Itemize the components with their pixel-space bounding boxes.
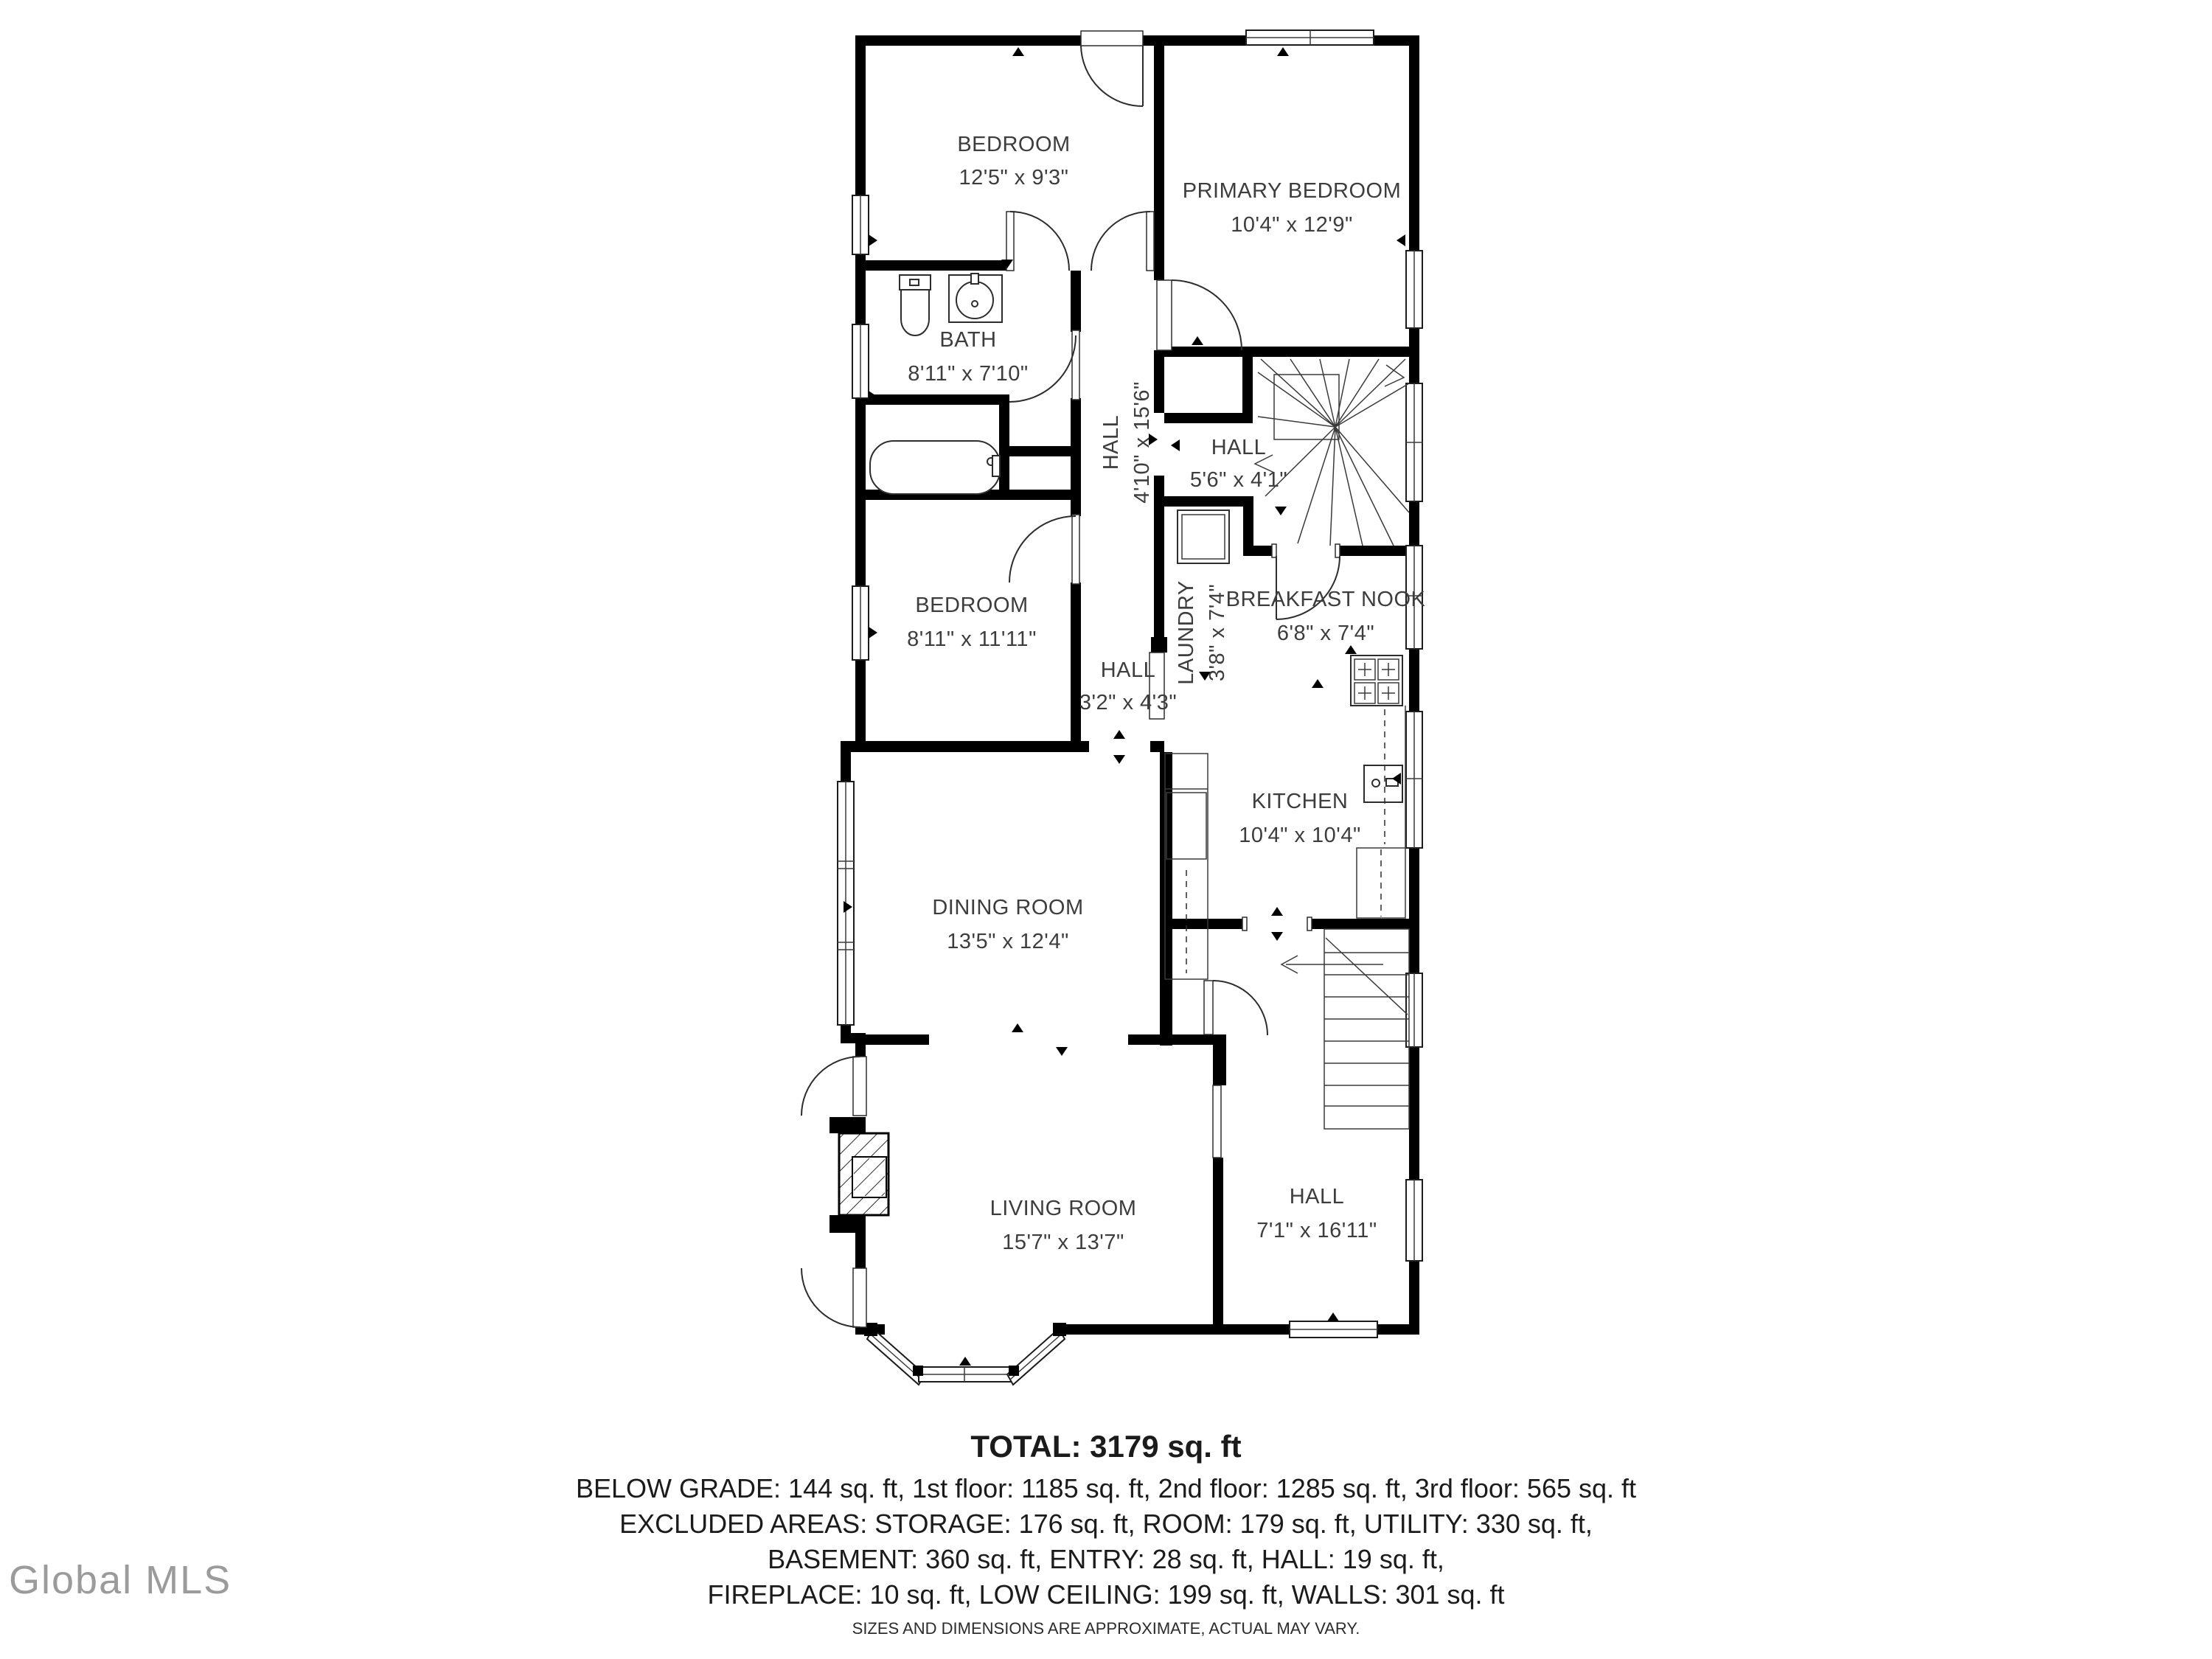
room-dims-hall-small: 3'2" x 4'3" bbox=[1079, 691, 1177, 714]
door-kitchen-hall bbox=[1204, 981, 1267, 1035]
room-label-hall-small: HALL bbox=[1101, 658, 1156, 682]
room-label-dining-room: DINING ROOM bbox=[932, 896, 1083, 919]
window-bath-left bbox=[852, 324, 869, 398]
room-label-breakfast-nook: BREAKFAST NOOK bbox=[1226, 588, 1426, 611]
summary-disclaimer: SIZES AND DIMENSIONS ARE APPROXIMATE, AC… bbox=[0, 1619, 2212, 1638]
room-dims-living-room: 15'7" x 13'7" bbox=[1002, 1231, 1124, 1254]
oven-icon bbox=[1364, 765, 1402, 802]
floorplan-page: { "watermark": "Global MLS", "floorplan"… bbox=[0, 0, 2212, 1659]
summary-total: TOTAL: 3179 sq. ft bbox=[0, 1429, 2212, 1464]
window-top-primary bbox=[1246, 30, 1374, 45]
room-label-bath: BATH bbox=[939, 328, 996, 352]
global-mls-watermark: Global MLS bbox=[9, 1557, 232, 1603]
room-dims-kitchen: 10'4" x 10'4" bbox=[1239, 824, 1361, 847]
toilet-icon bbox=[900, 275, 931, 335]
window-bedroom2-left bbox=[852, 586, 869, 660]
door-bedroom2 bbox=[1009, 515, 1079, 584]
room-label-hall-upper: HALL bbox=[1099, 415, 1123, 470]
room-label-hall-stairs: HALL bbox=[1211, 436, 1267, 459]
floorplan: BEDROOM 12'5" x 9'3" PRIMARY BEDROOM 10'… bbox=[782, 29, 1445, 1423]
summary-line-excluded: EXCLUDED AREAS: STORAGE: 176 sq. ft, ROO… bbox=[0, 1509, 2212, 1540]
room-label-living-room: LIVING ROOM bbox=[990, 1197, 1137, 1220]
window-kitchen-right bbox=[1406, 712, 1422, 848]
room-dims-primary-bedroom: 10'4" x 12'9" bbox=[1231, 213, 1353, 237]
room-label-laundry: LAUNDRY bbox=[1175, 580, 1198, 685]
room-dims-bedroom-mid: 8'11" x 11'11" bbox=[907, 627, 1037, 651]
window-bedroom-left bbox=[852, 195, 869, 254]
door-living-exterior-lower bbox=[801, 1268, 866, 1327]
room-dims-hall-upper: 4'10" x 15'6" bbox=[1130, 381, 1154, 504]
opening-kitchen-passage bbox=[1242, 917, 1312, 931]
room-label-hall-entry: HALL bbox=[1290, 1185, 1345, 1208]
main-staircase bbox=[1281, 929, 1409, 1129]
door-top-closet bbox=[1081, 31, 1143, 106]
room-dims-dining-room: 13'5" x 12'4" bbox=[947, 930, 1069, 953]
window-stairs-right bbox=[1406, 383, 1422, 501]
room-dims-hall-entry: 7'1" x 16'11" bbox=[1256, 1219, 1377, 1242]
washer-icon bbox=[1178, 510, 1229, 563]
room-dims-bedroom-top: 12'5" x 9'3" bbox=[959, 166, 1069, 189]
room-dims-hall-stairs: 5'6" x 4'1" bbox=[1190, 468, 1287, 492]
window-primary-right bbox=[1406, 251, 1422, 328]
door-bedroom-double bbox=[1006, 212, 1154, 271]
summary-line-basement: BASEMENT: 360 sq. ft, ENTRY: 28 sq. ft, … bbox=[0, 1544, 2212, 1575]
room-label-primary-bedroom: PRIMARY BEDROOM bbox=[1183, 179, 1401, 203]
winder-staircase bbox=[1255, 359, 1409, 546]
room-dims-bath: 8'11" x 7'10" bbox=[908, 362, 1028, 386]
window-hall-bottom bbox=[1290, 1321, 1377, 1338]
room-label-kitchen: KITCHEN bbox=[1252, 790, 1349, 813]
sink-icon bbox=[949, 274, 1002, 322]
opening-living-hall bbox=[1213, 1085, 1221, 1158]
bathtub-icon bbox=[870, 441, 1000, 494]
summary-line-fireplace: FIREPLACE: 10 sq. ft, LOW CEILING: 199 s… bbox=[0, 1579, 2212, 1610]
door-living-exterior-upper bbox=[801, 1057, 866, 1116]
summary-line-floors: BELOW GRADE: 144 sq. ft, 1st floor: 1185… bbox=[0, 1473, 2212, 1504]
room-dims-breakfast-nook: 6'8" x 7'4" bbox=[1277, 622, 1374, 645]
room-label-bedroom-top: BEDROOM bbox=[957, 133, 1070, 156]
window-hall-right-lower bbox=[1406, 1180, 1422, 1261]
room-label-bedroom-mid: BEDROOM bbox=[915, 594, 1028, 617]
fireplace-icon bbox=[839, 1133, 888, 1215]
bay-window bbox=[864, 1323, 1066, 1385]
floorplan-svg: BEDROOM 12'5" x 9'3" PRIMARY BEDROOM 10'… bbox=[782, 29, 1445, 1423]
stove-icon bbox=[1351, 655, 1402, 706]
